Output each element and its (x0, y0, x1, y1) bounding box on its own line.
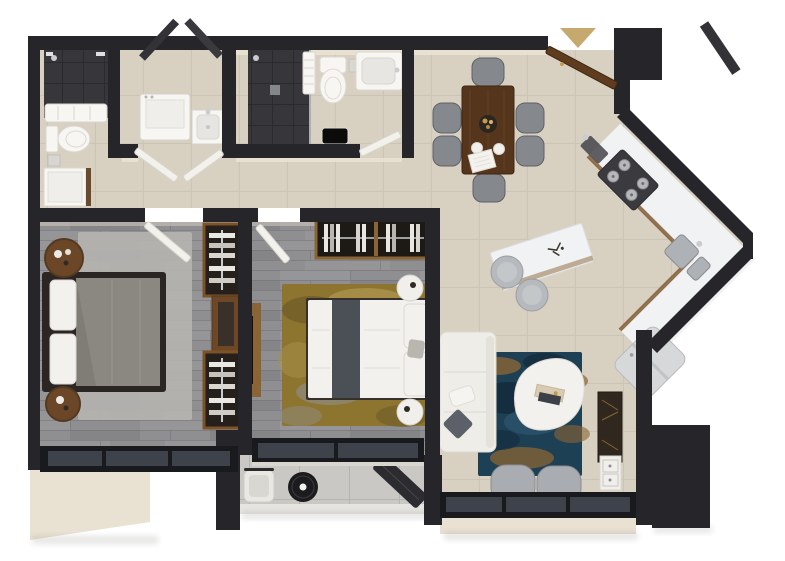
wall-bath2-south (236, 144, 360, 158)
wall-bath1-east (108, 36, 120, 158)
wall-balcony-west (216, 430, 240, 530)
wall-west (28, 36, 40, 470)
wall-bedroom-divider (238, 208, 252, 455)
wall-living-east (636, 330, 652, 525)
hanging-clothes (392, 224, 396, 252)
plate (494, 144, 505, 155)
hanging-clothes (209, 233, 235, 238)
tv-console (598, 392, 622, 462)
wall-face-strip (236, 158, 402, 162)
shadow (32, 536, 158, 544)
bathtub-basin (362, 58, 395, 84)
table-center (300, 484, 307, 491)
towel-shelf (45, 104, 107, 122)
wardrobe-lower (204, 352, 240, 428)
toilet-tank (46, 126, 58, 152)
wall-north (28, 36, 548, 50)
washer-lid (146, 100, 184, 128)
shampoo-bottles (46, 52, 53, 56)
dining-chair (433, 136, 461, 166)
washer-knob (151, 96, 154, 99)
wall-bed2-east (425, 208, 440, 455)
dining-chair (516, 103, 544, 133)
living-window (440, 492, 636, 518)
nightstand-round (46, 387, 80, 421)
rug-patch (278, 406, 322, 426)
shower-dark-tile (248, 50, 310, 148)
hanging-clothes (209, 372, 235, 377)
nightstand-decor (64, 406, 69, 411)
wall-laundry-east (222, 36, 236, 158)
sofa-g (440, 332, 496, 452)
hanging-clothes (209, 398, 235, 403)
hanging-clothes (356, 224, 360, 252)
hanging-clothes (416, 224, 420, 252)
dining-chair (516, 136, 544, 166)
dining-chair (472, 58, 504, 86)
window-glass (48, 451, 102, 466)
wall-face-strip (414, 50, 548, 55)
wall-bed2-north (300, 208, 425, 222)
drawer-knob (609, 465, 612, 468)
wall-master-north-left (28, 208, 145, 222)
hanging-clothes (410, 224, 414, 252)
pillow (50, 334, 76, 384)
hanging-clothes (386, 224, 390, 252)
floor-plan-canvas (0, 0, 785, 561)
wall-master-north-right (203, 208, 240, 222)
shadow (242, 512, 432, 519)
window-glass (338, 443, 418, 458)
nightstand-decor (65, 249, 71, 255)
pillow (404, 352, 428, 396)
nightstand-decor (64, 261, 69, 266)
window-glass (106, 451, 168, 466)
dining-chair (433, 103, 461, 133)
serving-tray (479, 115, 497, 133)
wall-face-strip (122, 158, 138, 162)
wardrobe (316, 218, 430, 258)
shelf-items (96, 52, 105, 56)
toilet-bowl (320, 69, 346, 103)
hanging-clothes (209, 384, 235, 389)
window-glass (172, 451, 230, 466)
towel-rack (303, 52, 315, 94)
nightstand-round (45, 239, 83, 277)
dining-chair (473, 174, 505, 202)
hanging-clothes (336, 224, 340, 252)
hanging-clothes (209, 266, 235, 271)
bath-mat (322, 128, 348, 144)
window-glass (258, 443, 334, 458)
master-window (40, 446, 238, 472)
nightstand-decor (410, 282, 416, 288)
rug-patch (554, 425, 590, 443)
drawer-knob (609, 479, 612, 482)
sofa-back (486, 336, 494, 448)
faucet (206, 110, 211, 115)
hanging-clothes (209, 278, 235, 283)
bottle (486, 125, 490, 129)
utility-door-leaf (700, 21, 741, 75)
bottle (489, 120, 493, 124)
wall-block-entry (614, 28, 662, 80)
hanging-clothes (209, 362, 235, 367)
chair-seat (249, 475, 269, 497)
wall-block-southeast (652, 425, 710, 528)
shower-head (253, 55, 259, 61)
bed-runner (332, 300, 360, 398)
chair-frame (244, 468, 274, 471)
stool-seat (497, 262, 517, 282)
wardrobe-divider (374, 220, 378, 256)
window-glass (446, 497, 502, 512)
nightstand-round (397, 275, 423, 301)
nightstand-round (397, 399, 423, 425)
stool-seat (522, 285, 542, 305)
wardrobe-upper (204, 224, 240, 296)
window-glass (570, 497, 630, 512)
nightstand-decor (404, 406, 410, 412)
dresser (212, 296, 240, 352)
washer-knob (145, 96, 148, 99)
hanging-clothes (330, 224, 334, 252)
tissue-box (48, 155, 60, 166)
wall-bath2-east (402, 36, 414, 158)
bottle (483, 119, 488, 124)
shadow (444, 532, 638, 540)
nightstand-decor (54, 250, 62, 258)
slider-threshold (252, 462, 424, 466)
shower-mixer (270, 85, 280, 95)
entrance-arrow (560, 28, 596, 48)
exterior-face-living (440, 518, 636, 534)
hanging-clothes (209, 410, 235, 415)
window-glass (506, 497, 566, 512)
wood-trim (86, 168, 91, 206)
nightstand-decor (56, 396, 64, 404)
tub-faucet (395, 68, 400, 73)
shower-tray-inner (48, 172, 82, 202)
balcony-slider (252, 438, 424, 466)
wall-balcony-east (424, 455, 442, 525)
hanging-clothes (209, 243, 235, 248)
drain (206, 125, 210, 129)
tv-backer-panel (252, 303, 261, 397)
wall-bed2-north-stub (252, 208, 258, 222)
toilet-bowl (58, 126, 90, 152)
exterior-face-master (30, 470, 150, 540)
hanging-clothes (209, 253, 235, 258)
floor-plan-render (0, 0, 785, 561)
pillow (50, 280, 76, 330)
accent-pillow (407, 339, 425, 359)
hanging-clothes (324, 224, 328, 252)
hanging-clothes (362, 224, 366, 252)
dresser-inset (218, 302, 234, 346)
